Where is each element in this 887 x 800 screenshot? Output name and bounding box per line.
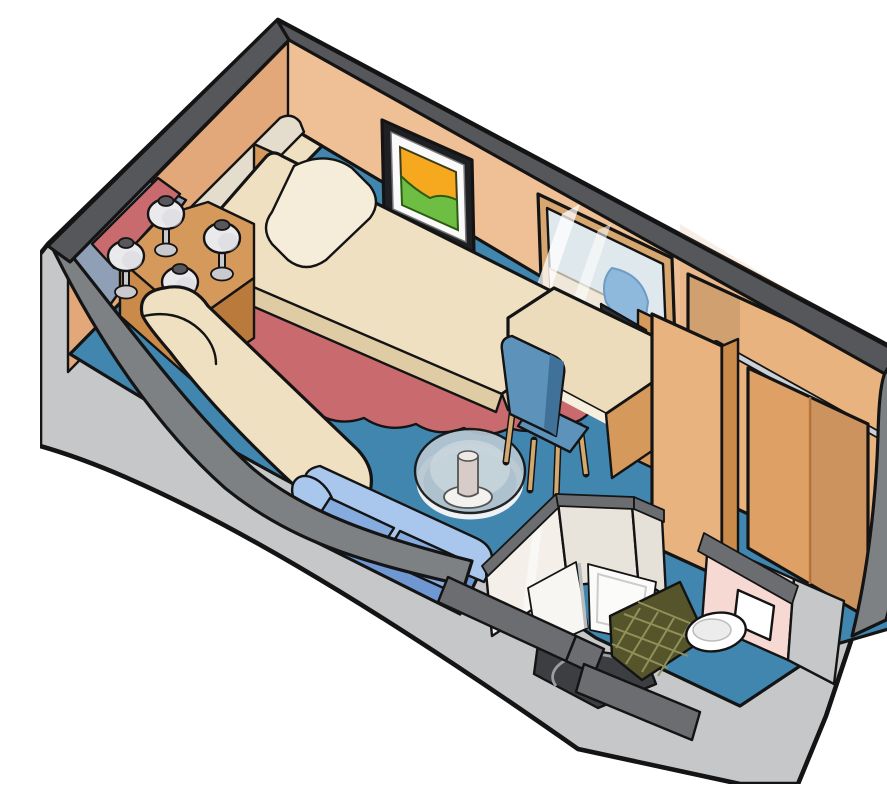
wardrobe-door-shade <box>810 397 868 618</box>
lamp-finial <box>119 238 134 248</box>
lamp-finial <box>159 196 174 206</box>
stateroom-cutaway-illustration <box>40 16 887 784</box>
toilet-seat-inner <box>693 619 731 641</box>
chair-leg <box>556 446 558 498</box>
lamp-base <box>211 268 233 281</box>
lamp-shade-shading <box>122 251 142 269</box>
table-vase <box>458 456 478 497</box>
lamp-base <box>155 244 177 257</box>
stateroom-floorplan-svg <box>40 16 887 784</box>
wardrobe-door-open-edge <box>722 339 738 578</box>
lamp-finial <box>215 220 230 230</box>
lamp-base <box>115 286 137 299</box>
bathroom-wall-cap-front <box>556 494 634 509</box>
lamp-shade-shading <box>162 209 182 227</box>
lamp-shade-shading <box>218 233 238 251</box>
lamp-finial <box>173 264 188 274</box>
table-vase-top <box>458 451 478 461</box>
